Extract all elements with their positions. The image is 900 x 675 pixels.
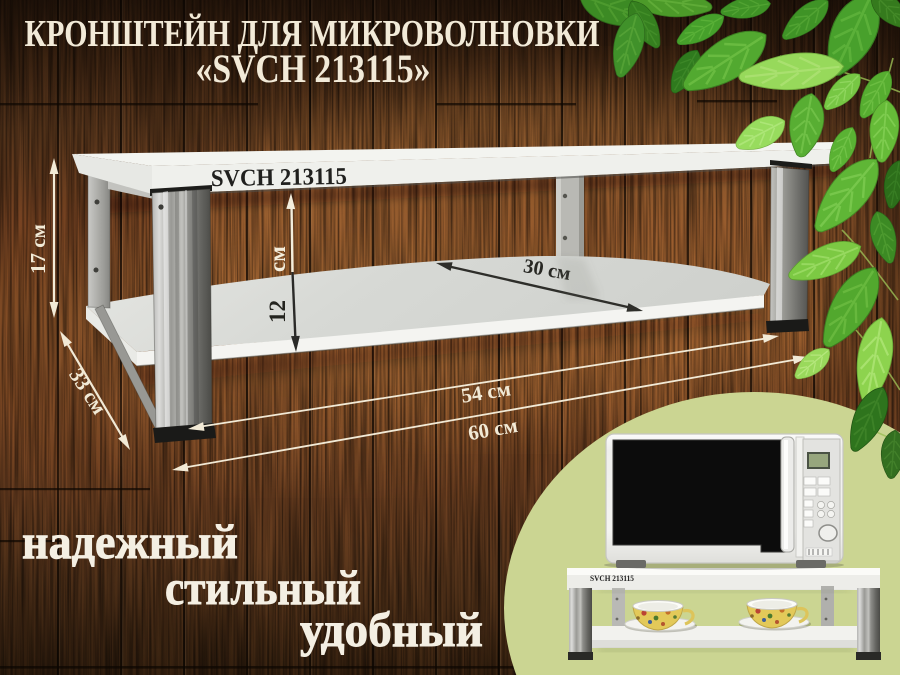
svg-text:17 см: 17 см xyxy=(26,224,50,274)
svg-text:12: 12 xyxy=(265,300,290,323)
svg-text:SVCH 213115: SVCH 213115 xyxy=(211,164,347,192)
svg-text:удобный: удобный xyxy=(300,602,483,657)
svg-text:см: см xyxy=(265,246,290,272)
svg-text:SVCH 213115: SVCH 213115 xyxy=(590,574,634,583)
svg-text:«SVCH 213115»: «SVCH 213115» xyxy=(196,46,431,91)
